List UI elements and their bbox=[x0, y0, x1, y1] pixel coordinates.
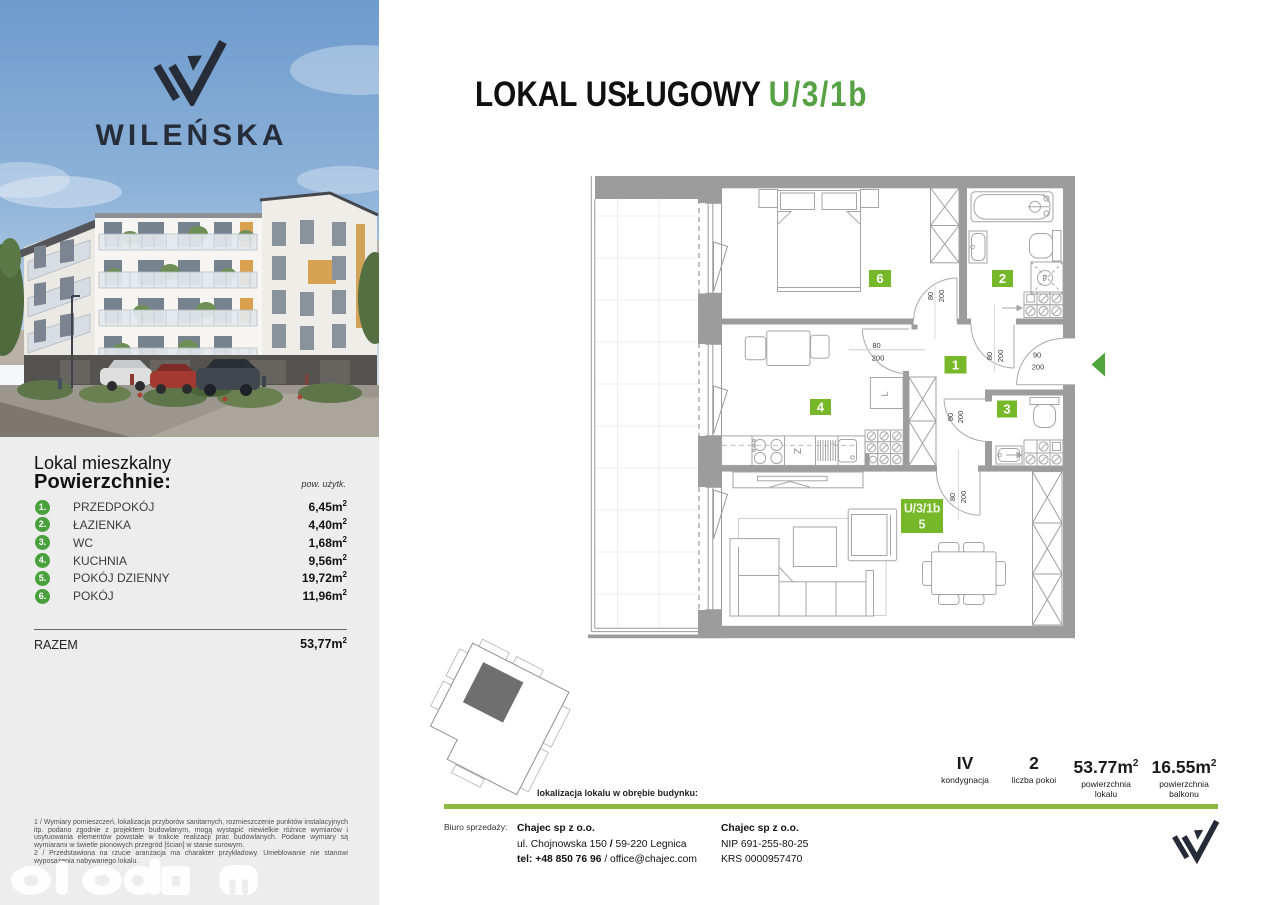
svg-text:80: 80 bbox=[946, 413, 955, 421]
svg-text:L: L bbox=[880, 391, 890, 396]
svg-text:80: 80 bbox=[872, 341, 880, 350]
svg-text:200: 200 bbox=[956, 411, 965, 424]
svg-text:Z: Z bbox=[793, 448, 804, 454]
svg-text:200: 200 bbox=[1032, 363, 1045, 372]
svg-text:80: 80 bbox=[985, 352, 994, 360]
svg-text:6: 6 bbox=[876, 271, 883, 286]
svg-text:200: 200 bbox=[937, 290, 946, 303]
svg-text:90: 90 bbox=[1033, 351, 1041, 360]
svg-text:200: 200 bbox=[996, 350, 1005, 363]
svg-text:80: 80 bbox=[926, 292, 935, 300]
svg-text:3: 3 bbox=[1003, 402, 1010, 417]
svg-text:1: 1 bbox=[952, 358, 959, 373]
svg-text:200: 200 bbox=[872, 354, 885, 363]
svg-text:U/3/1b: U/3/1b bbox=[904, 502, 941, 516]
svg-text:P: P bbox=[1042, 274, 1047, 283]
svg-text:2: 2 bbox=[999, 271, 1006, 286]
svg-text:80: 80 bbox=[948, 493, 957, 501]
svg-text:4: 4 bbox=[817, 400, 825, 415]
svg-text:200: 200 bbox=[959, 491, 968, 504]
svg-text:5: 5 bbox=[919, 518, 926, 532]
